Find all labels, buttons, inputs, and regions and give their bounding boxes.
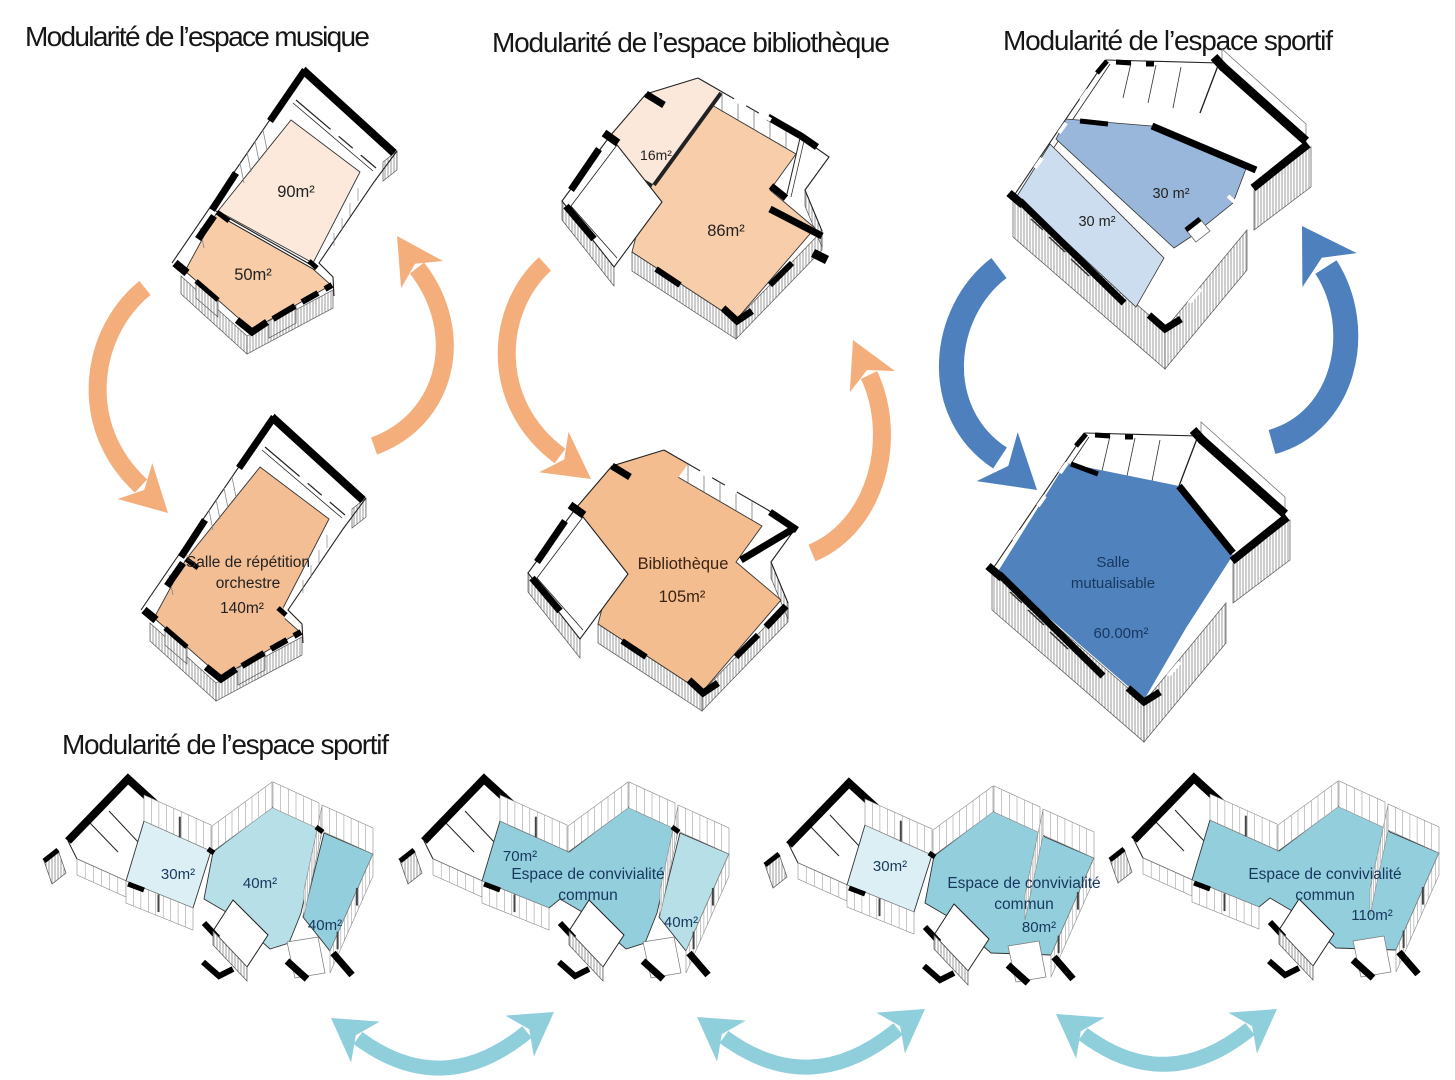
svg-text:commun: commun <box>1295 887 1354 904</box>
svg-text:Salle de répétition: Salle de répétition <box>186 554 310 571</box>
svg-text:orchestre: orchestre <box>216 575 281 592</box>
svg-text:Modularité de l’espace sportif: Modularité de l’espace sportif <box>62 729 389 760</box>
svg-text:30 m²: 30 m² <box>1152 186 1189 202</box>
svg-text:70m²: 70m² <box>503 848 537 865</box>
svg-text:30m²: 30m² <box>873 858 907 875</box>
svg-text:Espace de convivialité: Espace de convivialité <box>1248 866 1401 883</box>
svg-text:mutualisable: mutualisable <box>1071 575 1155 592</box>
svg-text:105m²: 105m² <box>659 588 706 606</box>
svg-text:Modularité de l’espace sportif: Modularité de l’espace sportif <box>1003 25 1333 56</box>
svg-text:Bibliothèque: Bibliothèque <box>638 555 729 573</box>
svg-text:40m²: 40m² <box>308 917 342 934</box>
svg-text:Modularité de l’espace musique: Modularité de l’espace musique <box>25 21 370 52</box>
svg-text:Salle: Salle <box>1096 554 1129 571</box>
svg-text:Modularité de l’espace bibliot: Modularité de l’espace bibliothèque <box>492 27 890 58</box>
svg-text:Espace de convivialité: Espace de convivialité <box>511 866 664 883</box>
svg-text:30 m²: 30 m² <box>1078 214 1115 230</box>
svg-text:60.00m²: 60.00m² <box>1093 625 1148 642</box>
svg-text:30m²: 30m² <box>161 866 195 883</box>
svg-text:16m²: 16m² <box>640 147 672 163</box>
svg-text:90m²: 90m² <box>277 183 315 201</box>
svg-text:commun: commun <box>994 896 1053 913</box>
svg-text:140m²: 140m² <box>220 600 264 617</box>
svg-text:Espace de convivialité: Espace de convivialité <box>947 875 1100 892</box>
svg-text:40m²: 40m² <box>243 875 277 892</box>
svg-text:commun: commun <box>558 887 617 904</box>
svg-text:80m²: 80m² <box>1022 919 1056 936</box>
svg-text:110m²: 110m² <box>1351 907 1392 924</box>
svg-text:40m²: 40m² <box>664 914 698 931</box>
svg-text:86m²: 86m² <box>707 222 745 240</box>
svg-text:50m²: 50m² <box>234 266 272 284</box>
